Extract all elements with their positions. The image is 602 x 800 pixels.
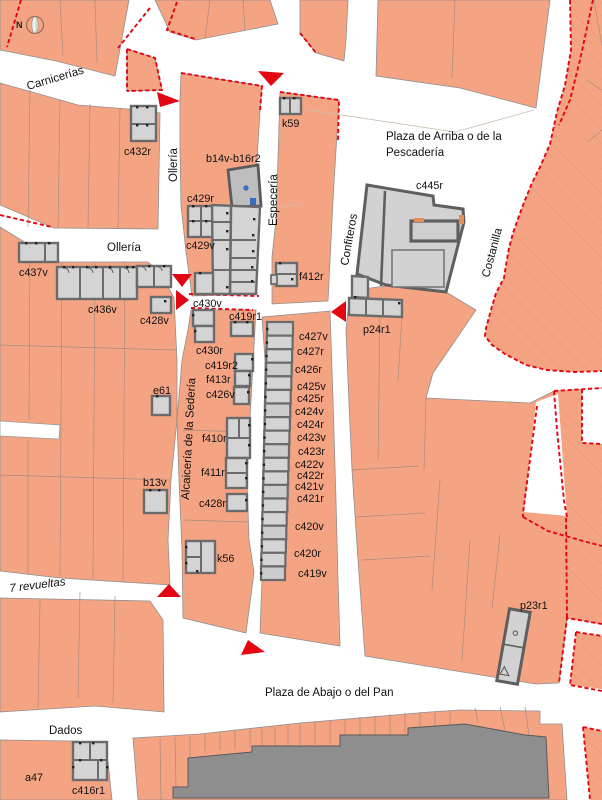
svg-text:c419r1: c419r1 [229,311,262,323]
svg-text:c427v: c427v [299,331,328,343]
svg-text:c437v: c437v [19,267,48,279]
svg-text:N: N [16,20,23,30]
svg-text:c419v: c419v [298,568,327,580]
svg-text:c428v: c428v [140,315,169,327]
svg-text:f413r: f413r [206,374,231,386]
svg-text:Ollería: Ollería [168,148,180,182]
svg-text:c424r: c424r [297,419,324,431]
svg-text:c419r2: c419r2 [205,360,238,372]
svg-text:Pescadería: Pescadería [386,147,445,159]
svg-text:c420r: c420r [294,548,321,560]
svg-text:Plaza de Arriba o de la: Plaza de Arriba o de la [386,131,502,143]
svg-text:b14v-b16r2: b14v-b16r2 [206,153,261,165]
svg-text:c432r: c432r [124,146,151,158]
svg-text:c423r: c423r [298,446,325,458]
svg-text:c425r: c425r [297,393,324,405]
svg-text:f411r: f411r [201,467,225,479]
svg-text:Plaza de Abajo o del Pan: Plaza de Abajo o del Pan [265,687,394,699]
svg-text:c426v: c426v [206,389,235,401]
svg-text:k56: k56 [217,553,234,565]
svg-text:Especería: Especería [268,174,280,226]
svg-text:Ollería: Ollería [107,242,141,254]
svg-text:c429r: c429r [187,193,214,205]
svg-text:c426r: c426r [295,364,322,376]
svg-text:c424v: c424v [295,406,324,418]
svg-text:p23r1: p23r1 [520,600,548,612]
svg-text:c428r: c428r [199,498,226,510]
svg-text:a47: a47 [25,772,43,784]
svg-text:c421r: c421r [297,493,324,505]
svg-text:c425v: c425v [297,381,326,393]
svg-text:f412r: f412r [299,271,324,283]
svg-text:c420v: c420v [295,521,324,533]
svg-text:p24r1: p24r1 [363,324,391,336]
svg-text:c429v: c429v [186,240,215,252]
svg-text:c430r: c430r [196,345,223,357]
svg-text:c436v: c436v [88,304,117,316]
svg-text:c421v: c421v [295,481,324,493]
svg-text:c445r: c445r [416,180,443,192]
svg-text:e61: e61 [153,385,171,397]
svg-text:b13v: b13v [143,477,167,489]
svg-text:c427r: c427r [297,346,324,358]
svg-text:Dados: Dados [49,725,82,737]
svg-text:c423v: c423v [297,432,326,444]
svg-text:c416r1: c416r1 [72,785,105,797]
svg-text:c430v: c430v [193,298,222,310]
svg-text:f410r: f410r [202,433,227,445]
svg-text:k59: k59 [282,118,299,130]
